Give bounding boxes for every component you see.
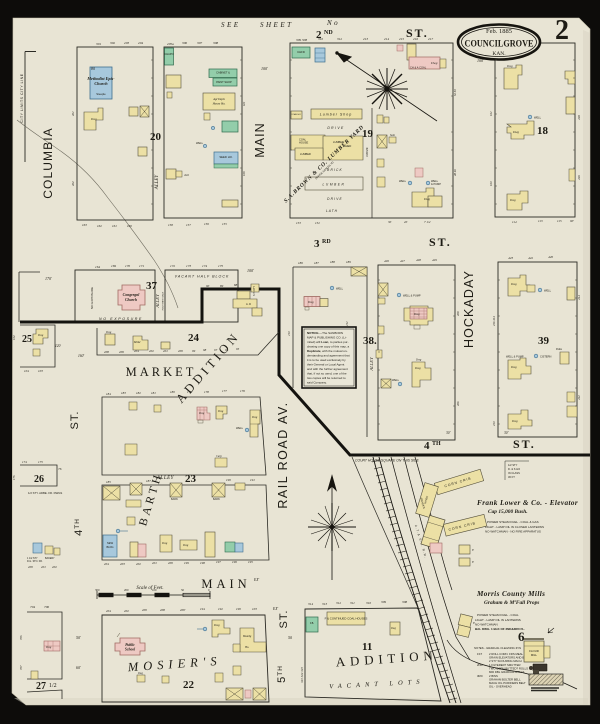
svg-text:310: 310 xyxy=(366,601,371,605)
svg-text:& PUMP: & PUMP xyxy=(431,182,441,186)
svg-text:80: 80 xyxy=(91,66,95,71)
svg-text:Dwg: Dwg xyxy=(45,646,52,649)
svg-text:HOCKADAY: HOCKADAY xyxy=(462,270,476,348)
svg-text:213: 213 xyxy=(363,37,368,41)
svg-text:621: 621 xyxy=(242,101,246,106)
svg-text:205a: 205a xyxy=(167,42,174,46)
svg-text:POWER STEAM FUEL - COAL & GAS: POWER STEAM FUEL - COAL & GAS xyxy=(487,520,539,524)
svg-text:402: 402 xyxy=(71,111,75,116)
svg-text:188: 188 xyxy=(330,260,335,264)
svg-text:418: 418 xyxy=(577,115,581,120)
svg-text:derstanding and agreement that: derstanding and agreement that xyxy=(307,354,350,358)
svg-text:171: 171 xyxy=(139,264,144,268)
svg-text:LATH: LATH xyxy=(326,209,338,213)
svg-text:201: 201 xyxy=(152,561,157,565)
svg-text:416: 416 xyxy=(577,175,581,180)
svg-text:OIL - OVERHEAD: OIL - OVERHEAD xyxy=(489,685,512,689)
svg-text:182: 182 xyxy=(136,391,141,395)
svg-text:170': 170' xyxy=(45,276,52,281)
svg-text:307: 307 xyxy=(197,41,202,45)
svg-text:23: 23 xyxy=(185,473,197,485)
svg-text:160': 160' xyxy=(78,354,84,358)
svg-text:191: 191 xyxy=(250,478,255,482)
svg-text:302: 302 xyxy=(110,41,115,45)
svg-text:203: 203 xyxy=(120,562,125,566)
svg-text:170: 170 xyxy=(125,264,130,268)
svg-text:48 46: 48 46 xyxy=(453,169,457,176)
svg-text:Saln: Saln xyxy=(390,134,396,137)
svg-text:Dwg: Dwg xyxy=(37,334,44,337)
svg-text:NOTICE.—The SANBORN: NOTICE.—The SANBORN xyxy=(307,331,343,335)
svg-text:and with the further agreement: and with the further agreement xyxy=(307,367,348,371)
svg-text:174: 174 xyxy=(202,264,207,268)
svg-text:174: 174 xyxy=(22,460,27,464)
svg-text:KAN.: KAN. xyxy=(492,51,506,57)
svg-text:that, if not so used, one of t: that, if not so used, one of the xyxy=(307,372,347,376)
svg-text:152: 152 xyxy=(315,221,320,225)
svg-text:156: 156 xyxy=(204,222,209,226)
svg-text:CHAPO: CHAPO xyxy=(164,52,173,56)
svg-text:201: 201 xyxy=(41,565,46,569)
svg-text:two copies will be returned to: two copies will be returned to xyxy=(307,376,346,380)
svg-text:RD: RD xyxy=(322,239,331,245)
svg-text:NO WATCHMAN - NO FIRE APPARATU: NO WATCHMAN - NO FIRE APPARATUS xyxy=(485,530,541,534)
svg-text:202: 202 xyxy=(124,609,129,613)
svg-text:F & CONTINUED COAL HOUSES: F & CONTINUED COAL HOUSES xyxy=(325,617,368,621)
svg-text:Duplicate, with the mutual un-: Duplicate, with the mutual un- xyxy=(307,349,348,353)
svg-text:CHFD: CHFD xyxy=(297,50,305,54)
svg-text:ALLEY: ALLEY xyxy=(369,357,374,372)
svg-text:Scale of Feet.: Scale of Feet. xyxy=(136,586,163,591)
svg-text:Agl Impts: Agl Impts xyxy=(212,97,225,101)
svg-text:Dwg: Dwg xyxy=(90,117,97,121)
svg-text:3RD: 3RD xyxy=(477,674,483,678)
svg-text:195: 195 xyxy=(248,560,253,564)
svg-text:27: 27 xyxy=(36,681,46,692)
svg-text:100': 100' xyxy=(261,66,268,71)
svg-text:Dwg: Dwg xyxy=(213,623,220,627)
svg-text:BARN: BARN xyxy=(213,498,220,501)
svg-text:203: 203 xyxy=(124,41,129,45)
svg-text:Dwg: Dwg xyxy=(510,282,517,286)
svg-text:Frank Lower & Co. - Elevator: Frank Lower & Co. - Elevator xyxy=(477,499,578,507)
svg-text:114: 114 xyxy=(512,220,517,224)
svg-text:Dwg: Dwg xyxy=(415,359,422,362)
svg-text:BARN: BARN xyxy=(171,498,178,501)
svg-text:306: 306 xyxy=(182,41,187,45)
svg-text:Dwg: Dwg xyxy=(512,130,519,134)
svg-text:Dwg: Dwg xyxy=(413,312,420,316)
svg-text:50: 50 xyxy=(288,635,292,640)
svg-text:175: 175 xyxy=(12,475,16,480)
svg-text:416 414: 416 414 xyxy=(492,316,496,326)
svg-text:WELL: WELL xyxy=(196,141,204,145)
svg-text:CITY LIMITS CITY LINE: CITY LIMITS CITY LINE xyxy=(20,73,24,122)
svg-text:S H CITY: S H CITY xyxy=(253,285,256,296)
svg-text:House Ho.: House Ho. xyxy=(212,102,226,106)
svg-text:chasing one copy of this map,: chasing one copy of this map, a xyxy=(307,345,350,349)
svg-text:428: 428 xyxy=(416,258,421,262)
svg-text:2ND: 2ND xyxy=(477,663,483,667)
svg-text:422: 422 xyxy=(528,256,533,260)
svg-text:113: 113 xyxy=(538,219,543,223)
svg-text:200: 200 xyxy=(124,588,129,592)
svg-text:427: 427 xyxy=(400,259,405,263)
svg-text:404: 404 xyxy=(71,181,75,186)
svg-text:90': 90' xyxy=(570,219,574,223)
svg-text:ND: ND xyxy=(324,30,333,36)
svg-text:WELL: WELL xyxy=(544,289,552,293)
svg-text:314: 314 xyxy=(308,602,313,606)
svg-text:190: 190 xyxy=(226,478,231,482)
svg-text:704: 704 xyxy=(30,605,35,609)
svg-text:206: 206 xyxy=(119,350,124,354)
svg-text:Lumber Shop: Lumber Shop xyxy=(320,113,353,117)
svg-text:30: 30 xyxy=(388,220,392,224)
svg-text:99: 99 xyxy=(192,349,196,353)
svg-text:176: 176 xyxy=(240,389,245,393)
svg-text:98: 98 xyxy=(203,348,207,352)
svg-text:School: School xyxy=(125,648,135,652)
svg-text:177: 177 xyxy=(222,389,227,393)
svg-text:408: 408 xyxy=(456,311,460,316)
svg-text:310: 310 xyxy=(318,37,323,41)
svg-text:88: 88 xyxy=(234,283,238,287)
svg-text:414: 414 xyxy=(577,295,581,300)
svg-text:Morris County Mills: Morris County Mills xyxy=(476,590,545,598)
svg-text:189: 189 xyxy=(346,260,351,264)
svg-text:104: 104 xyxy=(12,335,16,340)
svg-text:ST.: ST. xyxy=(429,235,452,249)
svg-text:200': 200' xyxy=(180,608,186,612)
svg-text:F.B.: F.B. xyxy=(310,622,314,625)
svg-text:COLUMBIA: COLUMBIA xyxy=(41,127,55,198)
svg-text:COUNCILGROVE: COUNCILGROVE xyxy=(465,40,534,50)
svg-text:COAL HO: COAL HO xyxy=(291,113,301,116)
svg-text:202: 202 xyxy=(149,349,154,353)
svg-text:Graham & MºFall Props: Graham & MºFall Props xyxy=(484,600,539,606)
svg-text:2: 2 xyxy=(555,15,569,46)
svg-text:89: 89 xyxy=(220,284,224,288)
svg-text:Church: Church xyxy=(125,298,137,302)
svg-text:175: 175 xyxy=(38,460,43,464)
svg-text:WELL: WELL xyxy=(236,426,244,430)
svg-text:ALLEY: ALLEY xyxy=(155,294,160,309)
svg-text:COURT HOUSE SQUARE ON THIS SID: COURT HOUSE SQUARE ON THIS SIDE xyxy=(355,459,420,463)
svg-text:208: 208 xyxy=(104,350,109,354)
svg-text:their General or Local Agent: their General or Local Agent xyxy=(307,363,345,367)
svg-text:30': 30' xyxy=(446,431,451,435)
svg-text:184: 184 xyxy=(106,392,111,396)
svg-text:Boardg: Boardg xyxy=(243,635,252,638)
svg-text:MAIN: MAIN xyxy=(253,122,267,157)
svg-text:20: 20 xyxy=(150,131,162,143)
svg-text:37: 37 xyxy=(146,280,158,292)
svg-text:Dwg: Dwg xyxy=(307,300,314,304)
svg-text:NO EXPOSURE: NO EXPOSURE xyxy=(99,317,143,321)
svg-text:187: 187 xyxy=(314,261,319,265)
svg-text:104: 104 xyxy=(24,369,29,373)
svg-text:ALLEY: ALLEY xyxy=(155,174,160,191)
svg-text:EX': EX' xyxy=(272,607,278,611)
svg-text:90: 90 xyxy=(206,284,210,288)
svg-text:169: 169 xyxy=(111,264,116,268)
svg-text:95: 95 xyxy=(236,347,240,351)
svg-text:NO EXPOSURE: NO EXPOSURE xyxy=(90,287,94,309)
svg-text:423: 423 xyxy=(508,256,513,260)
svg-text:D. & S HO: D. & S HO xyxy=(508,467,520,471)
svg-text:7 1/2: 7 1/2 xyxy=(424,220,431,224)
svg-text:181: 181 xyxy=(151,391,156,395)
svg-text:24: 24 xyxy=(188,332,200,344)
svg-text:said Company.: said Company. xyxy=(307,381,327,385)
svg-text:CISTERN: CISTERN xyxy=(540,355,552,359)
svg-text:D.G. STO. FR.: D.G. STO. FR. xyxy=(27,560,43,563)
svg-text:185: 185 xyxy=(106,480,111,484)
svg-text:WELL & PUMP: WELL & PUMP xyxy=(403,294,421,298)
svg-text:FOOT PATH ONLY: FOOT PATH ONLY xyxy=(162,291,165,310)
svg-text:WELL: WELL xyxy=(399,179,407,183)
svg-text:4: 4 xyxy=(424,440,430,452)
svg-text:Dwg: Dwg xyxy=(105,331,112,334)
svg-text:197: 197 xyxy=(216,560,221,564)
svg-text:NOTES - GRADUAL CLEANING SYS: NOTES - GRADUAL CLEANING SYS xyxy=(474,646,521,650)
svg-text:208: 208 xyxy=(160,608,165,612)
svg-text:153: 153 xyxy=(296,221,301,225)
svg-text:CH & A COAL: CH & A COAL xyxy=(410,66,427,70)
svg-text:30': 30' xyxy=(504,431,509,435)
svg-text:BAKERY: BAKERY xyxy=(45,557,55,560)
svg-text:Dwg: Dwg xyxy=(161,542,168,545)
svg-text:202: 202 xyxy=(136,562,141,566)
svg-text:60': 60' xyxy=(76,665,81,670)
svg-text:25: 25 xyxy=(22,334,32,345)
svg-text:200: 200 xyxy=(168,561,173,565)
svg-text:Dwg: Dwg xyxy=(182,544,189,547)
svg-text:LUMBER: LUMBER xyxy=(300,152,311,156)
svg-text:312: 312 xyxy=(336,601,341,605)
svg-text:BLDG: BLDG xyxy=(106,545,113,549)
svg-text:204: 204 xyxy=(134,349,139,353)
svg-text:F.: F. xyxy=(471,548,474,552)
svg-text:Steeple: Steeple xyxy=(96,92,106,96)
svg-text:A. D: A. D xyxy=(246,302,251,306)
svg-text:301: 301 xyxy=(96,42,101,46)
svg-text:20: 20 xyxy=(404,220,408,224)
svg-text:Ho.: Ho. xyxy=(244,646,249,649)
svg-text:214: 214 xyxy=(384,37,389,41)
svg-text:F.: F. xyxy=(472,621,475,625)
svg-text:VACANT HALF BLOCK: VACANT HALF BLOCK xyxy=(175,275,230,279)
svg-text:115: 115 xyxy=(557,219,562,223)
svg-text:216: 216 xyxy=(413,37,418,41)
svg-text:186: 186 xyxy=(298,261,303,265)
svg-text:183: 183 xyxy=(121,391,126,395)
svg-text:215: 215 xyxy=(399,37,404,41)
svg-text:19: 19 xyxy=(362,128,374,140)
svg-text:Dwg: Dwg xyxy=(511,419,518,423)
svg-text:NO WATCHMAN: NO WATCHMAN xyxy=(475,623,498,627)
svg-text:163: 163 xyxy=(82,223,87,227)
svg-text:18: 18 xyxy=(537,125,549,137)
svg-text:200: 200 xyxy=(142,608,147,612)
svg-text:Jail: Jail xyxy=(184,173,189,177)
svg-text:705: 705 xyxy=(19,635,23,640)
svg-text:Dwg: Dwg xyxy=(414,366,421,370)
svg-text:155: 155 xyxy=(222,222,227,226)
svg-text:308: 308 xyxy=(402,600,407,604)
svg-text:3: 3 xyxy=(314,238,320,250)
svg-text:ST.: ST. xyxy=(69,411,81,430)
svg-text:No: No xyxy=(326,19,340,27)
svg-text:MILL: MILL xyxy=(531,653,538,657)
svg-text:30 FT: 30 FT xyxy=(508,475,515,479)
svg-text:312: 312 xyxy=(337,37,342,41)
svg-text:120: 120 xyxy=(55,344,61,348)
svg-text:Dwg: Dwg xyxy=(509,198,516,202)
svg-text:178: 178 xyxy=(204,390,209,394)
svg-text:26: 26 xyxy=(34,474,44,485)
svg-text:39: 39 xyxy=(538,335,550,347)
svg-text:38.: 38. xyxy=(363,335,377,347)
svg-text:323 324 325: 323 324 325 xyxy=(300,667,304,683)
svg-text:410: 410 xyxy=(492,421,496,426)
svg-text:313: 313 xyxy=(322,602,327,606)
svg-text:ST.: ST. xyxy=(513,437,536,451)
svg-text:FUEL: FUEL xyxy=(556,348,563,351)
svg-text:Dwg: Dwg xyxy=(198,412,205,415)
svg-text:NEW: NEW xyxy=(107,541,114,545)
svg-text:309 308: 309 308 xyxy=(296,38,307,42)
svg-text:707: 707 xyxy=(19,665,23,670)
svg-text:MARKET: MARKET xyxy=(126,365,197,379)
svg-text:162: 162 xyxy=(97,224,102,228)
svg-text:SEED HO.: SEED HO. xyxy=(219,155,233,159)
svg-text:173: 173 xyxy=(186,264,191,268)
svg-text:ST.: ST. xyxy=(278,610,290,629)
svg-text:PAINT SHOP: PAINT SHOP xyxy=(216,80,232,84)
svg-text:50': 50' xyxy=(76,635,81,640)
svg-text:LUMBER: LUMBER xyxy=(323,183,346,187)
svg-text:it is to be used exclusively b: it is to be used exclusively by xyxy=(307,358,346,362)
svg-text:180: 180 xyxy=(170,390,175,394)
svg-text:DRIVE: DRIVE xyxy=(327,197,343,201)
svg-text:MAP & PUBLISHING CO. (Li-: MAP & PUBLISHING CO. (Li- xyxy=(307,336,347,340)
svg-text:202: 202 xyxy=(52,565,57,569)
svg-text:200: 200 xyxy=(28,565,33,569)
svg-text:187: 187 xyxy=(146,479,151,483)
svg-text:DRIVE: DRIVE xyxy=(365,146,369,156)
svg-text:200: 200 xyxy=(178,349,183,353)
svg-text:1/2 STY. ADBE. FR. DWGS: 1/2 STY. ADBE. FR. DWGS xyxy=(28,491,62,495)
svg-text:210: 210 xyxy=(287,331,291,336)
svg-text:1ST: 1ST xyxy=(477,652,482,656)
svg-text:1/2: 1/2 xyxy=(49,683,57,689)
svg-text:Congregnl: Congregnl xyxy=(123,293,141,297)
svg-text:LIGHT - LAMP OIL IN LANTERNS: LIGHT - LAMP OIL IN LANTERNS xyxy=(475,618,521,622)
svg-text:308: 308 xyxy=(213,41,218,45)
svg-text:Dwg: Dwg xyxy=(217,410,224,413)
svg-text:412: 412 xyxy=(577,395,581,400)
svg-text:179: 179 xyxy=(187,390,192,394)
svg-text:HOUSE: HOUSE xyxy=(299,141,308,145)
svg-text:201: 201 xyxy=(163,349,168,353)
svg-text:429: 429 xyxy=(432,258,437,262)
svg-text:SHEET: SHEET xyxy=(260,21,294,29)
svg-text:619: 619 xyxy=(242,171,246,176)
svg-text:F.: F. xyxy=(471,560,474,564)
svg-text:Dwg: Dwg xyxy=(137,672,144,675)
svg-text:Dwg: Dwg xyxy=(506,64,513,68)
svg-text:Dwg: Dwg xyxy=(423,197,430,201)
svg-text:mited) will Loan, to parties p: mited) will Loan, to parties pur- xyxy=(307,340,349,344)
svg-text:POWER STEAM FUEL - COAL: POWER STEAM FUEL - COAL xyxy=(477,613,519,617)
svg-text:RAIL ROAD AV.: RAIL ROAD AV. xyxy=(276,401,290,508)
svg-text:Mmkr: Mmkr xyxy=(133,341,142,344)
svg-text:204: 204 xyxy=(104,562,109,566)
svg-text:IN CLASS: IN CLASS xyxy=(508,471,520,475)
svg-text:WELL: WELL xyxy=(534,116,542,120)
svg-text:Dwg: Dwg xyxy=(510,365,517,369)
svg-text:204: 204 xyxy=(138,41,143,45)
svg-text:172: 172 xyxy=(170,264,175,268)
svg-text:161: 161 xyxy=(112,224,117,228)
svg-text:76: 76 xyxy=(58,467,62,471)
svg-text:300: 300 xyxy=(95,588,100,592)
svg-text:Public: Public xyxy=(125,643,135,647)
svg-text:406: 406 xyxy=(456,401,460,406)
svg-text:22: 22 xyxy=(183,679,195,691)
svg-text:212: 212 xyxy=(345,321,349,326)
svg-text:610: 610 xyxy=(489,181,493,186)
svg-text:Dwg: Dwg xyxy=(251,416,258,419)
svg-text:50: 50 xyxy=(181,588,185,592)
svg-text:SEE: SEE xyxy=(221,21,241,29)
svg-text:52 50: 52 50 xyxy=(453,89,457,96)
svg-text:198: 198 xyxy=(200,561,205,565)
svg-text:LIGHT - LAMP OIL IN CLOSED LAN: LIGHT - LAMP OIL IN CLOSED LANTERNS xyxy=(485,525,544,529)
svg-text:100: 100 xyxy=(152,588,157,592)
svg-text:TH: TH xyxy=(432,441,441,447)
svg-text:204: 204 xyxy=(106,609,111,613)
svg-text:420: 420 xyxy=(548,255,553,259)
svg-text:199: 199 xyxy=(184,561,189,565)
svg-text:158: 158 xyxy=(168,223,173,227)
svg-text:160: 160 xyxy=(127,224,132,228)
svg-text:196: 196 xyxy=(232,560,237,564)
svg-text:706: 706 xyxy=(44,605,49,609)
svg-text:311: 311 xyxy=(350,601,355,605)
svg-text:Feb. 1885: Feb. 1885 xyxy=(486,28,512,35)
svg-text:194: 194 xyxy=(200,607,205,611)
svg-text:190: 190 xyxy=(236,607,241,611)
svg-text:WELL: WELL xyxy=(336,287,344,291)
svg-text:Cap 15,000 Bush.: Cap 15,000 Bush. xyxy=(488,509,528,515)
svg-text:WELL: WELL xyxy=(392,378,400,382)
svg-text:Church: Church xyxy=(94,81,108,86)
svg-text:100': 100' xyxy=(247,268,254,273)
svg-text:Carp: Carp xyxy=(216,455,222,458)
svg-text:BRICK: BRICK xyxy=(327,168,343,172)
svg-text:103: 103 xyxy=(38,369,43,373)
svg-text:CABINET &: CABINET & xyxy=(216,71,230,75)
svg-text:192: 192 xyxy=(218,607,223,611)
svg-text:309: 309 xyxy=(381,600,386,604)
svg-text:EX': EX' xyxy=(253,578,259,582)
svg-text:Dwg: Dwg xyxy=(390,627,397,630)
svg-text:Dwg: Dwg xyxy=(430,61,438,65)
svg-text:103: 103 xyxy=(252,607,257,611)
